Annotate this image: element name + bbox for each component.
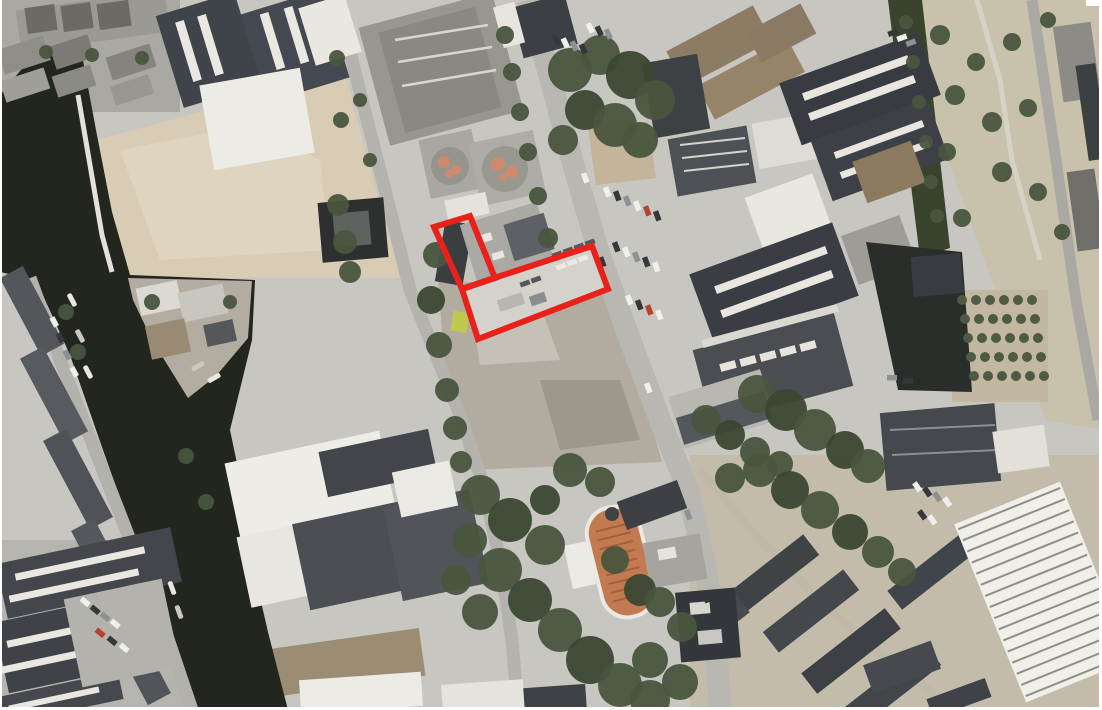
roof-art-blob xyxy=(445,170,453,178)
tree xyxy=(645,587,675,617)
tree xyxy=(1029,183,1047,201)
orchard-tree xyxy=(985,295,995,305)
tree xyxy=(899,15,913,29)
tree xyxy=(1054,224,1070,240)
orchard-tree xyxy=(997,371,1007,381)
orchard-tree xyxy=(1025,371,1035,381)
tree xyxy=(585,467,615,497)
tree xyxy=(548,125,578,155)
orchard-tree xyxy=(999,295,1009,305)
tree xyxy=(488,498,532,542)
oval-hall-tip xyxy=(605,507,619,521)
tree xyxy=(538,228,558,248)
tree xyxy=(503,63,521,81)
tree xyxy=(924,175,938,189)
orchard-tree xyxy=(966,352,976,362)
tree xyxy=(339,261,361,283)
tree xyxy=(441,565,471,595)
campus-building xyxy=(880,403,1001,491)
tree xyxy=(144,294,160,310)
tree xyxy=(862,536,894,568)
tree xyxy=(635,80,675,120)
orchard-tree xyxy=(1002,314,1012,324)
tree xyxy=(85,48,99,62)
tree xyxy=(992,162,1012,182)
aerial-photo xyxy=(0,0,1102,710)
tree xyxy=(462,594,498,630)
tree xyxy=(967,53,985,71)
tree xyxy=(333,112,349,128)
orchard-tree xyxy=(991,333,1001,343)
orchard-tree xyxy=(960,314,970,324)
tree xyxy=(223,295,237,309)
car xyxy=(903,378,913,384)
tree xyxy=(938,143,956,161)
orchard-tree xyxy=(974,314,984,324)
tree xyxy=(632,642,668,678)
tree xyxy=(906,55,920,69)
image-edge-strip xyxy=(0,0,2,710)
roof-circle-west xyxy=(431,147,469,185)
tree xyxy=(715,463,745,493)
roof-art-blob xyxy=(499,173,507,181)
orchard-tree xyxy=(1030,314,1040,324)
tree xyxy=(333,230,357,254)
tree xyxy=(135,51,149,65)
tree xyxy=(715,420,745,450)
orchard-tree xyxy=(1033,333,1043,343)
tree xyxy=(70,344,86,360)
tree xyxy=(353,93,367,107)
orchard-tree xyxy=(988,314,998,324)
orchard-tree xyxy=(980,352,990,362)
tree xyxy=(1003,33,1021,51)
se-square-mark-1 xyxy=(690,601,711,615)
tree xyxy=(198,494,214,510)
tree xyxy=(743,453,777,487)
tree xyxy=(601,546,629,574)
orchard-tree xyxy=(1019,333,1029,343)
tree xyxy=(496,26,514,44)
car xyxy=(887,375,897,381)
tree xyxy=(912,95,926,109)
orchard-tree xyxy=(977,333,987,343)
orchard-tree xyxy=(983,371,993,381)
rowhouse-roof-3 xyxy=(96,0,131,30)
tree xyxy=(801,491,839,529)
tree xyxy=(553,453,587,487)
orchard-tree xyxy=(957,295,967,305)
orchard-tree xyxy=(1016,314,1026,324)
tree xyxy=(426,332,452,358)
orchard-tree xyxy=(1005,333,1015,343)
orchard-tree xyxy=(971,295,981,305)
orchard-tree xyxy=(969,371,979,381)
tree xyxy=(178,448,194,464)
tree xyxy=(530,485,560,515)
orchard-tree xyxy=(1008,352,1018,362)
tree xyxy=(953,209,971,227)
tower-roof xyxy=(910,253,963,297)
south-dark xyxy=(523,684,587,710)
orchard-tree xyxy=(1039,371,1049,381)
roof-art-blob xyxy=(491,157,505,171)
lime-container xyxy=(450,311,469,333)
tree xyxy=(511,103,529,121)
orchard-tree xyxy=(1036,352,1046,362)
orchard-tree xyxy=(1011,371,1021,381)
tree xyxy=(39,45,53,59)
rowhouse-roof-2 xyxy=(60,2,93,32)
orchard-tree xyxy=(1022,352,1032,362)
tree xyxy=(945,85,965,105)
tree xyxy=(363,153,377,167)
orchard-tree xyxy=(994,352,1004,362)
tree xyxy=(982,112,1002,132)
se-square-mark-2 xyxy=(697,629,722,645)
tree xyxy=(529,187,547,205)
roof-art-blob xyxy=(438,156,450,168)
orchard-tree xyxy=(1013,295,1023,305)
tree xyxy=(525,525,565,565)
rowhouse-roof-1 xyxy=(24,4,57,34)
tree xyxy=(443,416,467,440)
tree xyxy=(622,122,658,158)
tree xyxy=(919,135,933,149)
tree xyxy=(930,209,944,223)
campus-white xyxy=(992,425,1049,474)
tree xyxy=(930,25,950,45)
image-edge-strip xyxy=(1086,0,1102,6)
roof-art-blob xyxy=(506,166,518,178)
tree xyxy=(667,612,697,642)
tree xyxy=(519,143,537,161)
aerial-map-svg xyxy=(0,0,1102,710)
orchard-tree xyxy=(963,333,973,343)
tree xyxy=(1040,12,1056,28)
tree xyxy=(329,50,345,66)
tree xyxy=(435,378,459,402)
tree xyxy=(327,194,349,216)
tree xyxy=(662,664,698,700)
orchard-tree xyxy=(1027,295,1037,305)
tree xyxy=(851,449,885,483)
tree xyxy=(832,514,868,550)
tree xyxy=(450,451,472,473)
tree xyxy=(1019,99,1037,117)
tree xyxy=(58,304,74,320)
tree xyxy=(888,558,916,586)
tree xyxy=(453,523,487,557)
tree xyxy=(417,286,445,314)
white-flat-building xyxy=(199,68,314,170)
